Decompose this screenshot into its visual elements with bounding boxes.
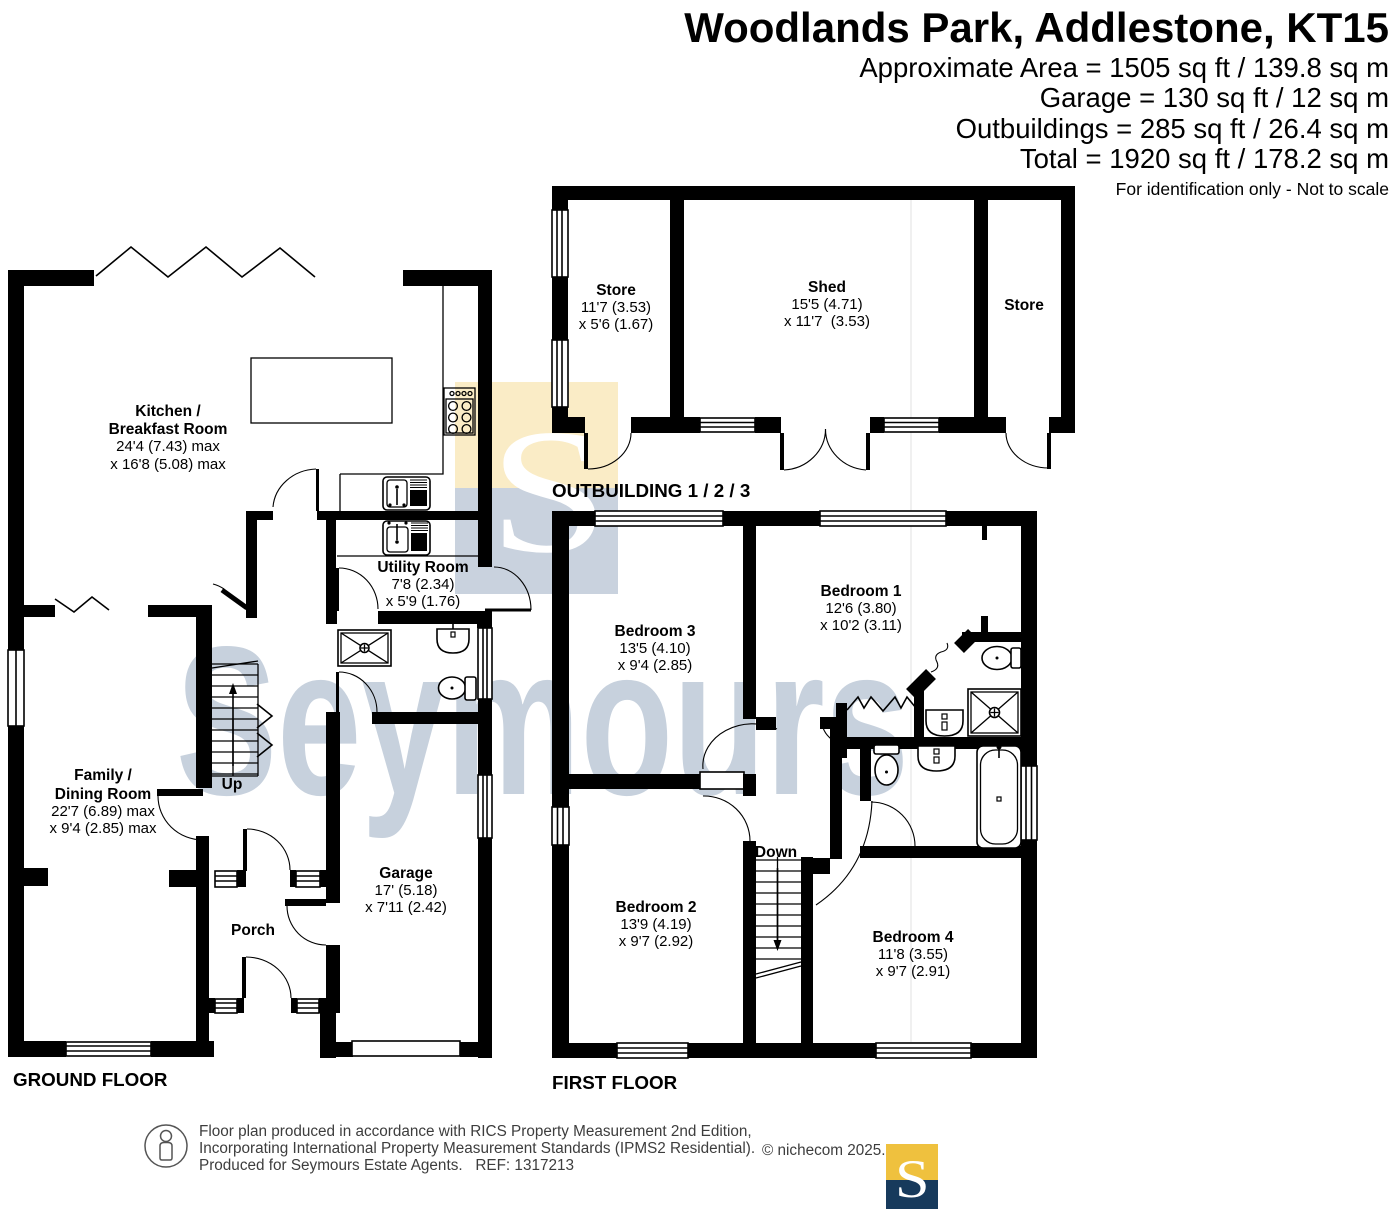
svg-text:Woodlands Park, Addlestone, KT: Woodlands Park, Addlestone, KT15 xyxy=(684,4,1389,51)
svg-text:11'7 (3.53): 11'7 (3.53) xyxy=(581,299,651,316)
svg-text:7'8 (2.34): 7'8 (2.34) xyxy=(392,576,455,593)
svg-text:17' (5.18): 17' (5.18) xyxy=(375,882,438,899)
svg-text:For identification only - Not: For identification only - Not to scale xyxy=(1116,179,1389,199)
svg-text:11'8 (3.55): 11'8 (3.55) xyxy=(878,946,948,963)
svg-text:© nichecom 2025.: © nichecom 2025. xyxy=(762,1142,886,1159)
svg-text:Shed: Shed xyxy=(808,279,846,296)
svg-text:Porch: Porch xyxy=(231,922,275,939)
svg-text:Bedroom 4: Bedroom 4 xyxy=(873,929,954,946)
svg-text:x 16'8 (5.08) max: x 16'8 (5.08) max xyxy=(110,456,226,473)
svg-text:x 7'11 (2.42): x 7'11 (2.42) xyxy=(365,899,447,916)
svg-text:x 10'2 (3.11): x 10'2 (3.11) xyxy=(820,617,902,634)
svg-text:GROUND FLOOR: GROUND FLOOR xyxy=(13,1069,168,1090)
svg-text:x 9'7 (2.91): x 9'7 (2.91) xyxy=(876,963,951,980)
svg-text:Dining Room: Dining Room xyxy=(55,786,151,803)
svg-text:x 9'4 (2.85) max: x 9'4 (2.85) max xyxy=(49,820,157,837)
svg-text:24'4 (7.43) max: 24'4 (7.43) max xyxy=(116,438,220,455)
svg-text:S: S xyxy=(895,1149,930,1209)
svg-text:Outbuildings = 285 sq ft / 26.: Outbuildings = 285 sq ft / 26.4 sq m xyxy=(956,113,1389,144)
svg-text:OUTBUILDING 1 / 2 / 3: OUTBUILDING 1 / 2 / 3 xyxy=(552,480,750,501)
svg-text:Bedroom 1: Bedroom 1 xyxy=(821,583,902,600)
svg-text:Garage: Garage xyxy=(379,865,433,882)
svg-text:Produced for Seymours Estate A: Produced for Seymours Estate Agents. REF… xyxy=(199,1157,574,1174)
svg-text:Incorporating International Pr: Incorporating International Property Mea… xyxy=(199,1140,755,1157)
svg-text:13'5 (4.10): 13'5 (4.10) xyxy=(619,640,690,657)
svg-text:12'6 (3.80): 12'6 (3.80) xyxy=(825,600,896,617)
svg-text:Seymours: Seymours xyxy=(176,602,909,839)
svg-text:x 5'9 (1.76): x 5'9 (1.76) xyxy=(386,593,461,610)
svg-text:Family /: Family / xyxy=(74,767,132,784)
svg-text:Utility Room: Utility Room xyxy=(377,559,468,576)
svg-text:13'9 (4.19): 13'9 (4.19) xyxy=(620,916,691,933)
svg-text:Down: Down xyxy=(755,844,797,861)
svg-text:x 9'4 (2.85): x 9'4 (2.85) xyxy=(618,657,693,674)
svg-text:Up: Up xyxy=(222,776,243,793)
svg-text:x 9'7 (2.92): x 9'7 (2.92) xyxy=(619,933,694,950)
svg-text:Kitchen /: Kitchen / xyxy=(135,403,201,420)
svg-text:22'7 (6.89) max: 22'7 (6.89) max xyxy=(51,803,155,820)
svg-text:Approximate Area = 1505 sq ft: Approximate Area = 1505 sq ft / 139.8 sq… xyxy=(859,52,1389,83)
svg-text:x 5'6 (1.67): x 5'6 (1.67) xyxy=(579,316,654,333)
svg-text:Bedroom 3: Bedroom 3 xyxy=(615,623,696,640)
svg-text:FIRST FLOOR: FIRST FLOOR xyxy=(552,1072,678,1093)
svg-text:Breakfast Room: Breakfast Room xyxy=(109,421,228,438)
svg-text:Garage = 130 sq ft / 12 sq m: Garage = 130 sq ft / 12 sq m xyxy=(1040,82,1389,113)
svg-text:Bedroom 2: Bedroom 2 xyxy=(616,899,697,916)
svg-text:Total = 1920 sq ft / 178.2 sq: Total = 1920 sq ft / 178.2 sq m xyxy=(1020,143,1389,174)
svg-text:Store: Store xyxy=(596,282,636,299)
svg-text:Floor plan produced in accorda: Floor plan produced in accordance with R… xyxy=(199,1123,752,1140)
svg-text:15'5 (4.71): 15'5 (4.71) xyxy=(791,296,862,313)
svg-text:Store: Store xyxy=(1004,297,1044,314)
svg-text:x 11'7 (3.53): x 11'7 (3.53) xyxy=(784,313,870,330)
